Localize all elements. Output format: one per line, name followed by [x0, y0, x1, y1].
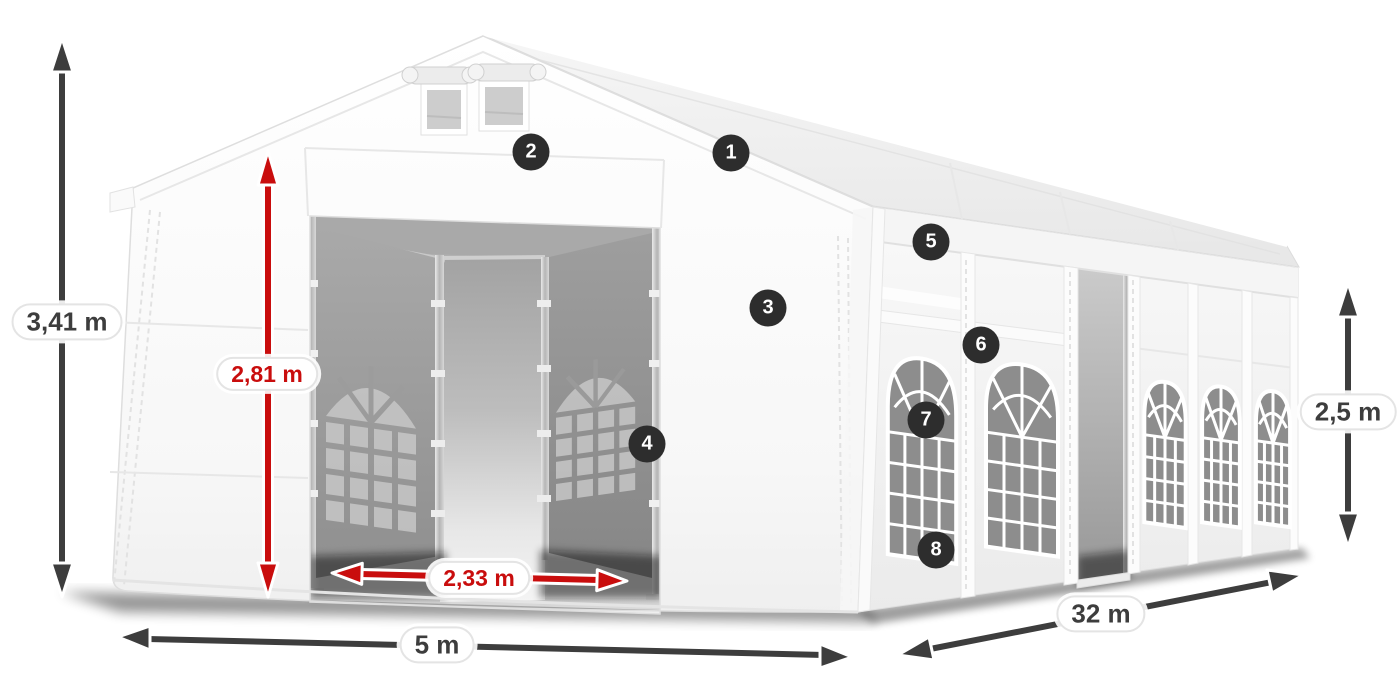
front-entrance-interior	[298, 215, 670, 610]
side-doorway	[1077, 252, 1130, 586]
hotspot-badge-3[interactable]: 3	[750, 290, 787, 327]
front-door-left	[316, 227, 445, 578]
tent-dimensions-diagram: 3,41 m 2,81 m 2,33 m 5 m 32 m 2,5 m 1 2 …	[0, 0, 1400, 700]
side-window-3	[1144, 379, 1185, 528]
dimension-label-length: 32 m	[1056, 595, 1145, 632]
dimension-label-entrance-height: 2,81 m	[216, 357, 318, 391]
side-window-4	[1202, 384, 1240, 528]
side-window-1	[888, 354, 956, 564]
hotspot-badge-2[interactable]: 2	[513, 134, 550, 171]
dimension-label-entrance-width: 2,33 m	[428, 561, 530, 595]
hotspot-badge-1[interactable]: 1	[713, 135, 750, 172]
hotspot-badge-7[interactable]: 7	[908, 402, 945, 439]
front-door-right	[537, 233, 652, 578]
hotspot-badge-5[interactable]: 5	[913, 224, 950, 261]
arrow-width	[118, 626, 852, 668]
hotspot-badge-8[interactable]: 8	[918, 532, 955, 569]
dimension-label-total-height: 3,41 m	[12, 303, 123, 340]
hotspot-badge-4[interactable]: 4	[629, 426, 666, 463]
side-window-5	[1256, 389, 1290, 527]
hotspot-badge-6[interactable]: 6	[963, 327, 1000, 364]
side-window-2	[986, 359, 1058, 556]
dimension-label-width: 5 m	[400, 626, 475, 663]
tent-illustration	[0, 0, 1400, 700]
dimension-label-side-height: 2,5 m	[1300, 393, 1397, 430]
